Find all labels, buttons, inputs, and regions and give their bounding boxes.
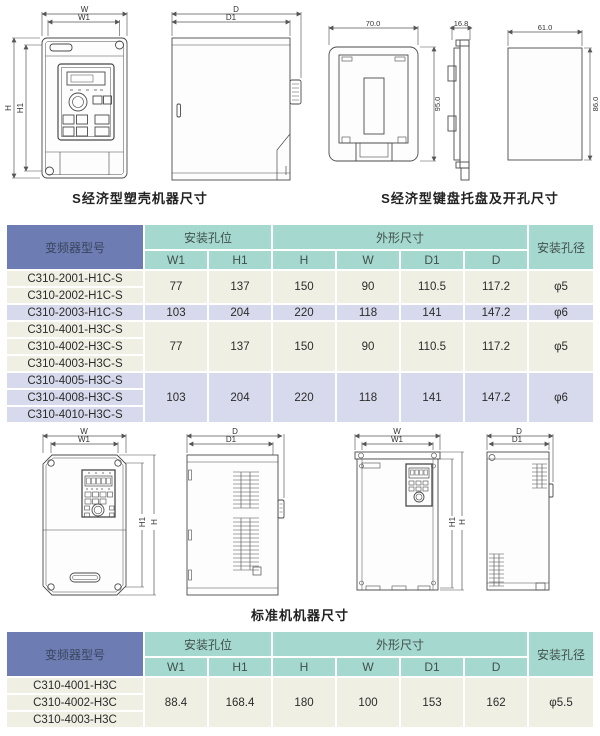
caption-economic-machine: S经济型塑壳机器尺寸 [30,188,250,207]
model-cell: C310-4010-H3C-S [7,407,143,422]
manual-page: W W1 H H1 D D1 70.0 95.0 [0,0,600,736]
front-view-small-inverter [12,12,127,178]
model-cell: C310-4001-H3C [7,678,143,693]
economic-drawings: W W1 H H1 D D1 70.0 95.0 [0,4,600,184]
value-cell: 204 [209,305,271,320]
side-view-standard-a [187,434,284,595]
value-cell: φ6 [529,373,593,422]
dim-label-h1: H1 [16,102,25,113]
front-view-standard-a [43,434,156,595]
value-cell: 110.5 [401,322,463,371]
keypad-tray-side-view [448,26,472,180]
value-cell: 220 [273,373,335,422]
standard-drawings: W W1 H1 H D D1 [0,426,600,602]
table-row: C310-2003-H1C-S 103 204 220 118 141 147.… [7,305,593,320]
side-view-small-inverter [172,12,301,180]
value-cell: 77 [145,271,207,303]
header-col-d1: D1 [401,658,463,676]
value-cell: 150 [273,271,335,303]
mounting-cutout-view [508,30,592,160]
value-cell: φ5 [529,271,593,303]
dim-label-tray-height: 95.0 [433,97,442,112]
table-row: C310-4001-H3C-S 77 137 150 90 110.5 117.… [7,322,593,337]
model-cell: C310-2001-H1C-S [7,271,143,286]
dim-label-h: H [458,519,467,525]
value-cell: 168.4 [209,678,271,727]
header-col-d1: D1 [401,251,463,269]
header-model: 变频器型号 [7,632,143,676]
model-cell: C310-2002-H1C-S [7,288,143,303]
header-mounting-holes: 安装孔位 [145,632,271,656]
value-cell: 117.2 [465,322,527,371]
table-row: C310-4005-H3C-S 103 204 220 118 141 147.… [7,373,593,388]
header-hole-diameter: 安装孔径 [529,632,593,676]
front-view-standard-b [355,434,464,590]
table-row: C310-4001-H3C 88.4 168.4 180 100 153 162… [7,678,593,693]
value-cell: 118 [337,305,399,320]
model-cell: C310-2003-H1C-S [7,305,143,320]
value-cell: 137 [209,271,271,303]
dim-label-h1: H1 [448,516,457,527]
dim-label-tray-width: 70.0 [366,19,381,28]
value-cell: 137 [209,322,271,371]
keypad-tray-front-view [329,26,436,161]
model-cell: C310-4002-H3C [7,695,143,710]
header-col-w1: W1 [145,658,207,676]
dim-label-d1: D1 [226,13,237,22]
dim-label-d1: D1 [512,435,523,444]
header-col-w: W [337,251,399,269]
header-col-h1: H1 [209,251,271,269]
economic-dimensions-table: 变频器型号 安装孔位 外形尺寸 安装孔径 W1 H1 H W D1 D C310… [5,223,595,424]
value-cell: 220 [273,305,335,320]
value-cell: 90 [337,271,399,303]
dim-label-w1: W1 [78,13,91,22]
value-cell: φ5.5 [529,678,593,727]
header-col-h: H [273,251,335,269]
value-cell: 162 [465,678,527,727]
header-col-h1: H1 [209,658,271,676]
header-model: 变频器型号 [7,225,143,269]
value-cell: 150 [273,322,335,371]
table-row: C310-2001-H1C-S 77 137 150 90 110.5 117.… [7,271,593,286]
value-cell: 88.4 [145,678,207,727]
model-cell: C310-4002-H3C-S [7,339,143,354]
value-cell: 141 [401,305,463,320]
value-cell: 204 [209,373,271,422]
model-cell: C310-4003-H3C [7,712,143,727]
value-cell: 153 [401,678,463,727]
value-cell: 90 [337,322,399,371]
dim-label-h1: H1 [138,516,147,527]
dim-label-w1: W1 [391,435,404,444]
header-col-w1: W1 [145,251,207,269]
value-cell: 100 [337,678,399,727]
value-cell: 147.2 [465,373,527,422]
value-cell: 77 [145,322,207,371]
dim-label-tray-depth: 16.8 [454,19,469,28]
header-mounting-holes: 安装孔位 [145,225,271,249]
caption-standard-machine: 标准机机器尺寸 [150,605,450,624]
value-cell: φ6 [529,305,593,320]
value-cell: 118 [337,373,399,422]
header-outline-dims: 外形尺寸 [273,632,527,656]
value-cell: 117.2 [465,271,527,303]
value-cell: 103 [145,305,207,320]
side-view-standard-b [487,434,553,590]
dim-label-h: H [4,105,13,111]
model-cell: C310-4008-H3C-S [7,390,143,405]
value-cell: 141 [401,373,463,422]
header-outline-dims: 外形尺寸 [273,225,527,249]
header-col-d: D [465,251,527,269]
value-cell: 103 [145,373,207,422]
model-cell: C310-4003-H3C-S [7,356,143,371]
header-col-d: D [465,658,527,676]
dim-label-d1: D1 [226,435,237,444]
header-hole-diameter: 安装孔径 [529,225,593,269]
dim-label-h: H [150,519,159,525]
header-col-w: W [337,658,399,676]
model-cell: C310-4001-H3C-S [7,322,143,337]
value-cell: 147.2 [465,305,527,320]
dim-label-cutout-height: 86.0 [591,97,600,112]
standard-dimensions-table: 变频器型号 安装孔位 外形尺寸 安装孔径 W1 H1 H W D1 D C310… [5,630,595,729]
value-cell: φ5 [529,322,593,371]
value-cell: 180 [273,678,335,727]
dim-label-cutout-width: 61.0 [538,23,553,32]
caption-economic-keypad: S经济型键盘托盘及开孔尺寸 [350,188,590,207]
header-col-h: H [273,658,335,676]
dim-label-w1: W1 [78,435,91,444]
value-cell: 110.5 [401,271,463,303]
model-cell: C310-4005-H3C-S [7,373,143,388]
